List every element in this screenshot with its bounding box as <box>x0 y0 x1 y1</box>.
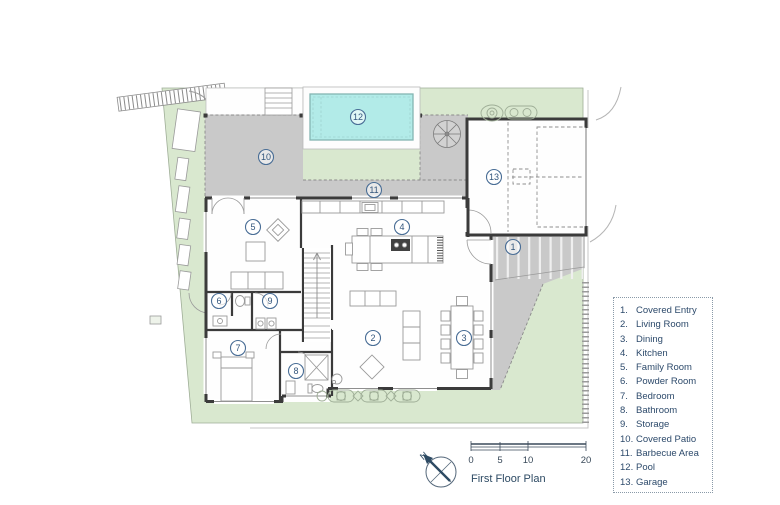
svg-text:3: 3 <box>461 333 466 343</box>
legend-item-label: Covered Entry <box>636 304 697 318</box>
spiral-stair <box>434 121 461 148</box>
room-label-3: 3 <box>457 331 472 346</box>
sofa-top <box>350 291 396 306</box>
svg-text:0: 0 <box>468 455 473 466</box>
room-label-6: 6 <box>212 294 227 309</box>
svg-text:11: 11 <box>369 185 378 195</box>
svg-text:10: 10 <box>523 455 534 466</box>
room-label-11: 11 <box>367 183 382 198</box>
room-label-7: 7 <box>231 341 246 356</box>
legend-item-label: Storage <box>636 418 669 432</box>
room-label-1: 1 <box>506 240 521 255</box>
legend-item-number: 9. <box>620 418 636 432</box>
legend-item-label: Bathroom <box>636 404 677 418</box>
legend-item-number: 7. <box>620 390 636 404</box>
svg-text:4: 4 <box>399 222 404 232</box>
room-label-9: 9 <box>263 294 278 309</box>
svg-text:8: 8 <box>293 366 298 376</box>
legend-item: 7.Bedroom <box>620 390 710 404</box>
legend-item: 1.Covered Entry <box>620 304 710 318</box>
room-label-10: 10 <box>259 150 274 165</box>
legend-item-number: 11. <box>620 447 636 461</box>
svg-text:9: 9 <box>267 296 272 306</box>
legend-item-label: Covered Patio <box>636 433 696 447</box>
sofa-side <box>403 311 420 360</box>
scale-bar: 0 5 10 20 First Floor Plan <box>468 441 591 485</box>
legend-item-number: 6. <box>620 375 636 389</box>
legend-item: 10.Covered Patio <box>620 433 710 447</box>
svg-text:20: 20 <box>581 455 592 466</box>
covered-patio-paving <box>205 115 303 198</box>
room-label-5: 5 <box>246 220 261 235</box>
legend-item-number: 4. <box>620 347 636 361</box>
legend-item-number: 12. <box>620 461 636 475</box>
legend-item-number: 5. <box>620 361 636 375</box>
legend-item-label: Barbecue Area <box>636 447 699 461</box>
legend-item: 5.Family Room <box>620 361 710 375</box>
bath-toilet-tank <box>308 384 312 393</box>
svg-text:2: 2 <box>370 333 375 343</box>
svg-text:5: 5 <box>250 222 255 232</box>
floor-plan-page: 1 2 3 4 5 6 7 8 9 10 11 12 13 N 0 <box>0 0 780 505</box>
svg-text:13: 13 <box>489 172 499 182</box>
legend-item-label: Dining <box>636 333 663 347</box>
legend-item-number: 10. <box>620 433 636 447</box>
svg-text:1: 1 <box>510 242 515 252</box>
legend-item-label: Bedroom <box>636 390 675 404</box>
scale-ticks: 0 5 10 20 <box>468 455 591 466</box>
driveway-arc-2 <box>590 205 616 242</box>
legend-item: 8.Bathroom <box>620 404 710 418</box>
north-arrow: N <box>418 450 456 487</box>
toilet-tank <box>245 297 250 305</box>
interior-stair <box>304 248 331 342</box>
room-label-13: 13 <box>487 170 502 185</box>
plan-title: First Floor Plan <box>471 473 546 485</box>
bed <box>221 357 252 401</box>
legend-item: 3.Dining <box>620 333 710 347</box>
bath-sink <box>286 381 295 394</box>
legend-item-label: Family Room <box>636 361 692 375</box>
side-table <box>246 242 265 261</box>
legend-item-number: 3. <box>620 333 636 347</box>
equipment-pad <box>150 316 161 324</box>
svg-text:6: 6 <box>216 296 221 306</box>
room-label-12: 12 <box>351 110 366 125</box>
legend-item: 4.Kitchen <box>620 347 710 361</box>
exterior-steps <box>265 88 292 115</box>
svg-text:7: 7 <box>235 343 240 353</box>
legend-item: 11.Barbecue Area <box>620 447 710 461</box>
legend-item-number: 2. <box>620 318 636 332</box>
legend-item: 9.Storage <box>620 418 710 432</box>
svg-text:5: 5 <box>497 455 502 466</box>
legend-item-label: Powder Room <box>636 375 696 389</box>
svg-text:10: 10 <box>261 152 271 162</box>
legend-item-label: Garage <box>636 476 668 490</box>
legend-item-number: 8. <box>620 404 636 418</box>
room-label-2: 2 <box>366 331 381 346</box>
legend-item: 6.Powder Room <box>620 375 710 389</box>
legend-item: 2.Living Room <box>620 318 710 332</box>
legend-item-number: 13. <box>620 476 636 490</box>
legend-item: 13.Garage <box>620 476 710 490</box>
toilet <box>236 296 245 307</box>
legend-item-label: Pool <box>636 461 655 475</box>
legend-box: 1.Covered Entry2.Living Room3.Dining4.Ki… <box>613 297 713 493</box>
legend-item-label: Kitchen <box>636 347 668 361</box>
driveway-arc <box>596 87 621 120</box>
room-label-8: 8 <box>289 364 304 379</box>
legend-item-number: 1. <box>620 304 636 318</box>
family-sofa <box>231 272 283 289</box>
svg-text:12: 12 <box>353 112 363 122</box>
room-label-4: 4 <box>395 220 410 235</box>
legend-item-label: Living Room <box>636 318 689 332</box>
legend-list: 1.Covered Entry2.Living Room3.Dining4.Ki… <box>620 304 710 490</box>
legend-item: 12.Pool <box>620 461 710 475</box>
